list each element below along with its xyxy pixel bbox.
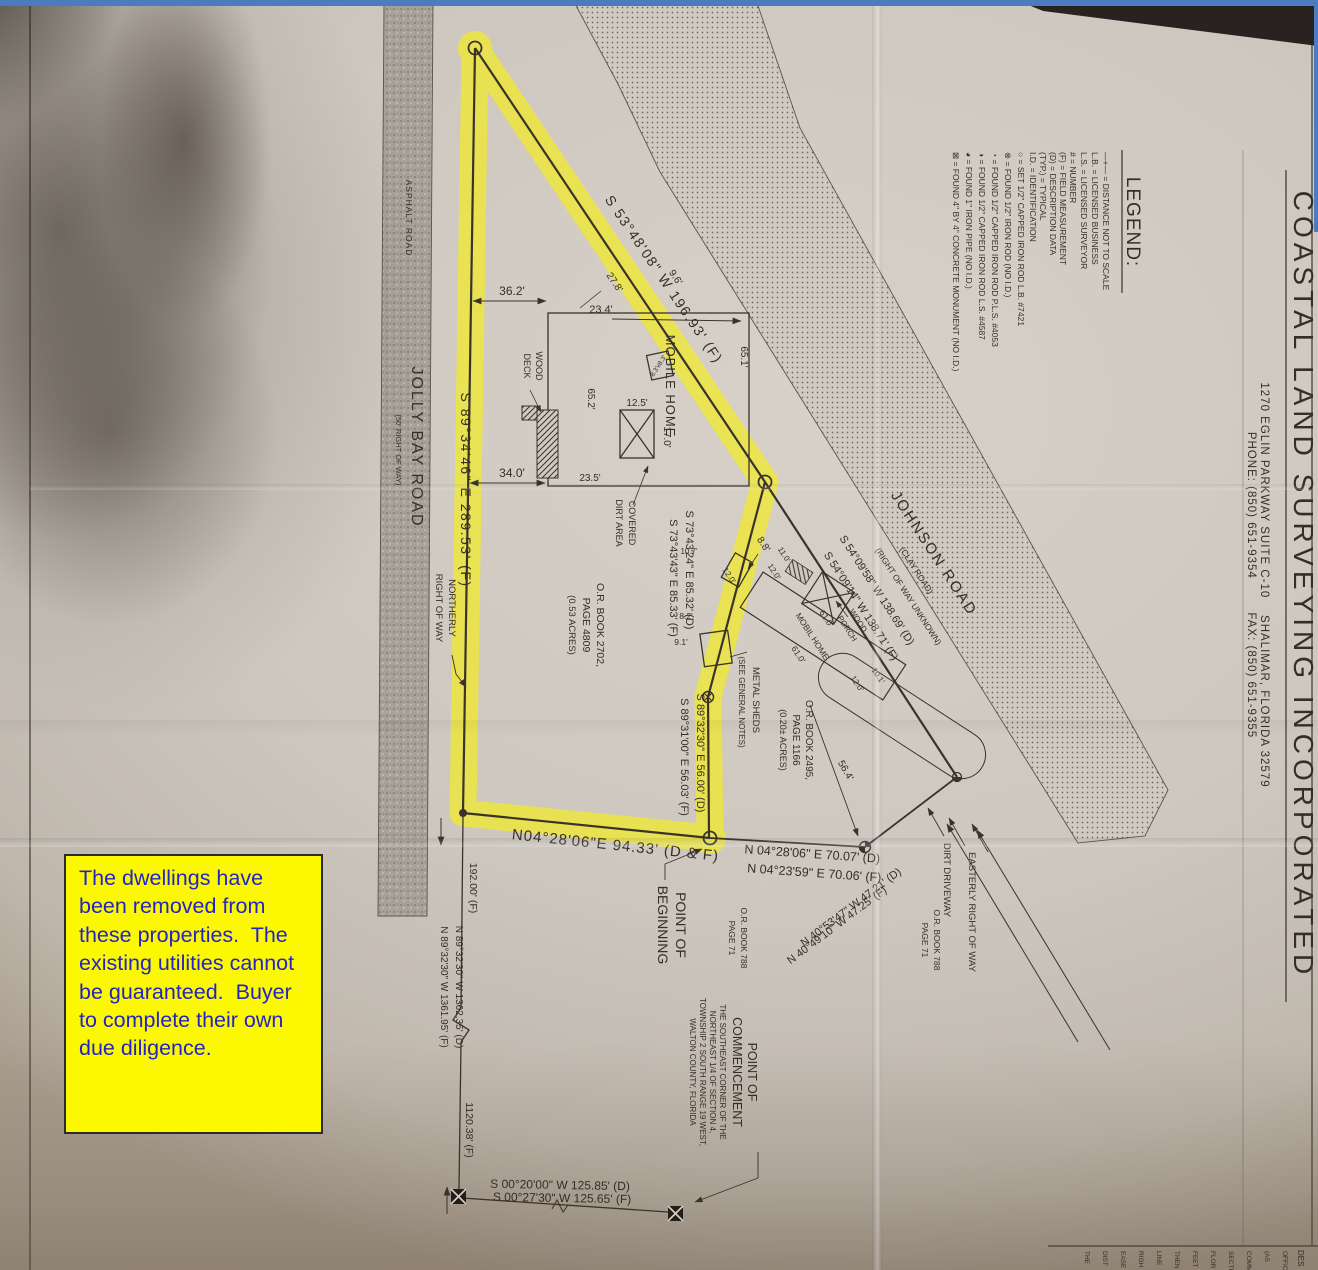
pg4809-label: PAGE 4809 bbox=[580, 598, 592, 653]
dim-110: 11.0' bbox=[776, 545, 793, 564]
dim-234: 23.4' bbox=[589, 304, 613, 316]
pg71-east-label: PAGE 71 bbox=[920, 923, 930, 958]
wood-deck-stub bbox=[522, 406, 537, 420]
strip-frag-9: EASE bbox=[1119, 1251, 1126, 1269]
poc-detail-1: THE SOUTHEAST CORNER OF THE bbox=[718, 1004, 727, 1139]
porch-steps-hatch bbox=[785, 560, 813, 585]
pg1166-label: PAGE 1166 bbox=[790, 714, 801, 766]
legend-item-1: L.B. = LICENSED BUSINESS bbox=[1090, 152, 1100, 265]
bearing-secf: N 89°32'30" W 1361.95' (F) bbox=[438, 926, 449, 1047]
disclaimer-note-text: The dwellings have been removed from the… bbox=[79, 866, 294, 1060]
strip-frag-6: THEN bbox=[1173, 1251, 1180, 1269]
dim-125: 12.5' bbox=[626, 398, 647, 409]
legend-item-10: ◔ = FOUND 1/2" CAPPED IRON ROD P.L.S. #4… bbox=[990, 152, 1000, 347]
poc-detail-3: TOWNSHIP 2 SOUTH RANGE 19 WEST, bbox=[698, 998, 707, 1146]
strip-frag-4: FLOR bbox=[1209, 1251, 1216, 1269]
legend-title: LEGEND: bbox=[1122, 177, 1143, 267]
bearing-botf: S 00°27'30" W 125.65' (F) bbox=[493, 1190, 632, 1206]
dim-340: 34.0' bbox=[499, 466, 525, 480]
dim-82: 8.2' bbox=[679, 611, 693, 621]
or788-pob-label: O.R. BOOK 788 bbox=[739, 908, 749, 969]
legend-item-5: (D) = DESCRIPTION DATA bbox=[1048, 152, 1058, 256]
company-phone-fax: PHONE: (850) 651-9354 FAX: (850) 651-935… bbox=[1245, 432, 1257, 738]
concrete-monument-poc-icon bbox=[668, 1206, 683, 1221]
line-east-lower bbox=[708, 697, 709, 837]
easterly-row-line-2 bbox=[977, 830, 1110, 1050]
legend-item-11: ◑ = FOUND 1/2" CAPPED IRON ROD L.S. #458… bbox=[977, 152, 987, 340]
jolly-bay-row-label: (50' RIGHT OF WAY) bbox=[394, 415, 403, 486]
strip-frag-2: COMM bbox=[1245, 1251, 1252, 1270]
legend-item-2: L.S. = LICENSED SURVEYOR bbox=[1079, 152, 1089, 269]
poc-label-1: POINT OF bbox=[745, 1043, 759, 1102]
found-pipe-sw-icon bbox=[459, 809, 467, 817]
wood-deck-label-1: WOOD bbox=[534, 352, 544, 381]
dirt-area-label: DIRT AREA bbox=[614, 499, 624, 546]
strip-frag-5: FEET bbox=[1191, 1251, 1198, 1268]
dim-651: 65.1' bbox=[738, 346, 749, 367]
covered-dirt-area-box bbox=[620, 410, 654, 458]
easterly-leader-2 bbox=[972, 824, 988, 852]
legend-item-6: (TYP.) = TYPICAL bbox=[1038, 152, 1048, 221]
dirt-driveway-leader bbox=[928, 808, 944, 836]
acres-053-label: (0.53 ACRES) bbox=[566, 595, 577, 655]
poc-detail-2: NORTHEAST 1/4 OF SECTION 4, bbox=[708, 1011, 717, 1133]
dim-91: 9.1' bbox=[674, 637, 688, 647]
dim-235: 23.5' bbox=[579, 473, 600, 484]
poc-leader bbox=[695, 1152, 758, 1202]
disclaimer-note: The dwellings have been removed from the… bbox=[64, 854, 323, 1134]
description-strip: DES OFFIC (AS COMM SECTI FLOR FEET THEN … bbox=[1083, 1250, 1305, 1270]
or788-east-label: O.R. BOOK 788 bbox=[932, 910, 942, 971]
description-header: DES bbox=[1296, 1250, 1305, 1266]
poc-detail-4: WALTON COUNTY, FLORIDA bbox=[688, 1018, 697, 1126]
dim-101: 10.1' bbox=[870, 666, 887, 686]
metal-sheds-label: METAL SHEDS bbox=[750, 667, 761, 733]
dim-170: 17.0' bbox=[661, 426, 672, 447]
easterly-row-label: EASTERLY RIGHT OF WAY bbox=[966, 852, 977, 972]
bearing-e2d: S 89°32'30" E 56.00' (D) bbox=[694, 694, 706, 813]
strip-frag-0: OFFIC bbox=[1281, 1251, 1288, 1270]
poc-label-2: COMMENCEMENT bbox=[730, 1017, 744, 1127]
strip-frag-3: SECTI bbox=[1227, 1251, 1234, 1270]
bearing-e1f: S 73°43'43" E 85.33' (F) bbox=[667, 519, 679, 637]
dim-564: 56.4' bbox=[835, 759, 855, 783]
bearing-nwf: N 40°49'10" W 47.25' (F) bbox=[785, 884, 889, 967]
asphalt-road-label: ASPHALT ROAD bbox=[404, 180, 414, 257]
covered-label: COVERED bbox=[627, 501, 637, 546]
johnson-road-band bbox=[573, 0, 1168, 843]
bearing-e2f: S 89°31'00" E 56.03' (F) bbox=[678, 698, 690, 816]
wood-deck-hatch bbox=[537, 410, 558, 478]
pg71-pob-label: PAGE 71 bbox=[727, 921, 737, 956]
dim-36: 36.2' bbox=[499, 284, 525, 298]
legend-item-0: —+— = DISTANCE NOT TO SCALE bbox=[1101, 152, 1111, 291]
strip-frag-10: DIST bbox=[1101, 1251, 1108, 1266]
dim-234-leader bbox=[612, 319, 741, 321]
legend-item-8: ○ = SET 1/2" CAPPED IRON ROD L.B. #7421 bbox=[1016, 152, 1026, 326]
bearing-s2f: N 04°23'59" E 70.06' (F) bbox=[747, 861, 882, 884]
legend-item-7: I.D. = IDENTIFICATION bbox=[1028, 152, 1038, 242]
title-block: COASTAL LAND SURVEYING INCORPORATED 1270… bbox=[1245, 170, 1318, 1002]
dim-1120: 1120.38' (F) bbox=[463, 1102, 475, 1158]
dim-652: 65.2' bbox=[585, 388, 596, 409]
jolly-bay-road-label: JOLLY BAY ROAD bbox=[408, 366, 425, 527]
wood-deck-label-2: DECK bbox=[522, 353, 532, 378]
or2702-label: O.R. BOOK 2702, bbox=[594, 583, 606, 667]
johnson-road: JOHNSON ROAD (CLAY ROAD) (RIGHT OF WAY U… bbox=[573, 0, 1168, 843]
dim-610a: 61.0' bbox=[817, 608, 835, 629]
mobile-home-label: MOBILE HOME bbox=[663, 335, 678, 438]
bearing-secd: N 89°32'30" W 1362.35' (D) bbox=[453, 926, 464, 1049]
dim-120b: 12.0' bbox=[766, 562, 783, 582]
legend-item-4: (F) = FIELD MEASUREMENT bbox=[1058, 152, 1068, 265]
dim-192: 192.00' (F) bbox=[467, 863, 479, 913]
strip-frag-7: LINE bbox=[1155, 1251, 1162, 1266]
legend: LEGEND: —+— = DISTANCE NOT TO SCALE L.B.… bbox=[951, 150, 1143, 372]
see-notes-label: (SEE GENERAL NOTES) bbox=[737, 656, 746, 748]
section-line-west-lower bbox=[459, 1042, 461, 1189]
survey-plat-photo: ASPHALT ROAD JOLLY BAY ROAD (50' RIGHT O… bbox=[0, 0, 1318, 1270]
dim-120c: 12.0' bbox=[849, 674, 866, 694]
or2495-label: O.R. BOOK 2495, bbox=[803, 700, 814, 780]
company-address: 1270 EGLIN PARKWAY SUITE C-10 SHALIMAR, … bbox=[1258, 382, 1270, 787]
found-rod-driveway-icon bbox=[953, 773, 962, 782]
strip-frag-11: THE bbox=[1083, 1251, 1090, 1265]
pob-label-2: BEGINNING bbox=[655, 886, 671, 965]
line-nw-driveway bbox=[865, 777, 957, 847]
concrete-monument-sw-icon bbox=[451, 1189, 466, 1204]
dim-107: 10.7' bbox=[680, 547, 698, 556]
jolly-bay-road: ASPHALT ROAD JOLLY BAY ROAD (50' RIGHT O… bbox=[378, 0, 433, 916]
bearing-west: S 89°34'46" E 289.53' (F) bbox=[458, 392, 474, 587]
legend-item-12: ◕ = FOUND 1" IRON PIPE (NO I.D.) bbox=[964, 152, 974, 289]
acres-020-label: (0.20± ACRES) bbox=[778, 709, 788, 770]
strip-frag-1: (AS bbox=[1263, 1251, 1270, 1263]
legend-item-3: # = NUMBER bbox=[1068, 152, 1078, 203]
legend-item-13: ⊠ = FOUND 4" BY 4" CONCRETE MONUMENT (NO… bbox=[951, 152, 961, 372]
row-label: RIGHT OF WAY bbox=[433, 574, 444, 643]
strip-frag-8: RIGH bbox=[1137, 1251, 1144, 1268]
pob-label-1: POINT OF bbox=[673, 892, 689, 958]
company-name: COASTAL LAND SURVEYING INCORPORATED bbox=[1288, 191, 1318, 980]
dirt-driveway-label: DIRT DRIVEWAY bbox=[941, 843, 952, 918]
legend-item-9: ⊗ = FOUND 1/2" IRON ROD (NO I.D.) bbox=[1003, 152, 1013, 298]
dim-610b: 61.0' bbox=[789, 644, 807, 665]
northerly-label: NORTHERLY bbox=[446, 579, 457, 637]
